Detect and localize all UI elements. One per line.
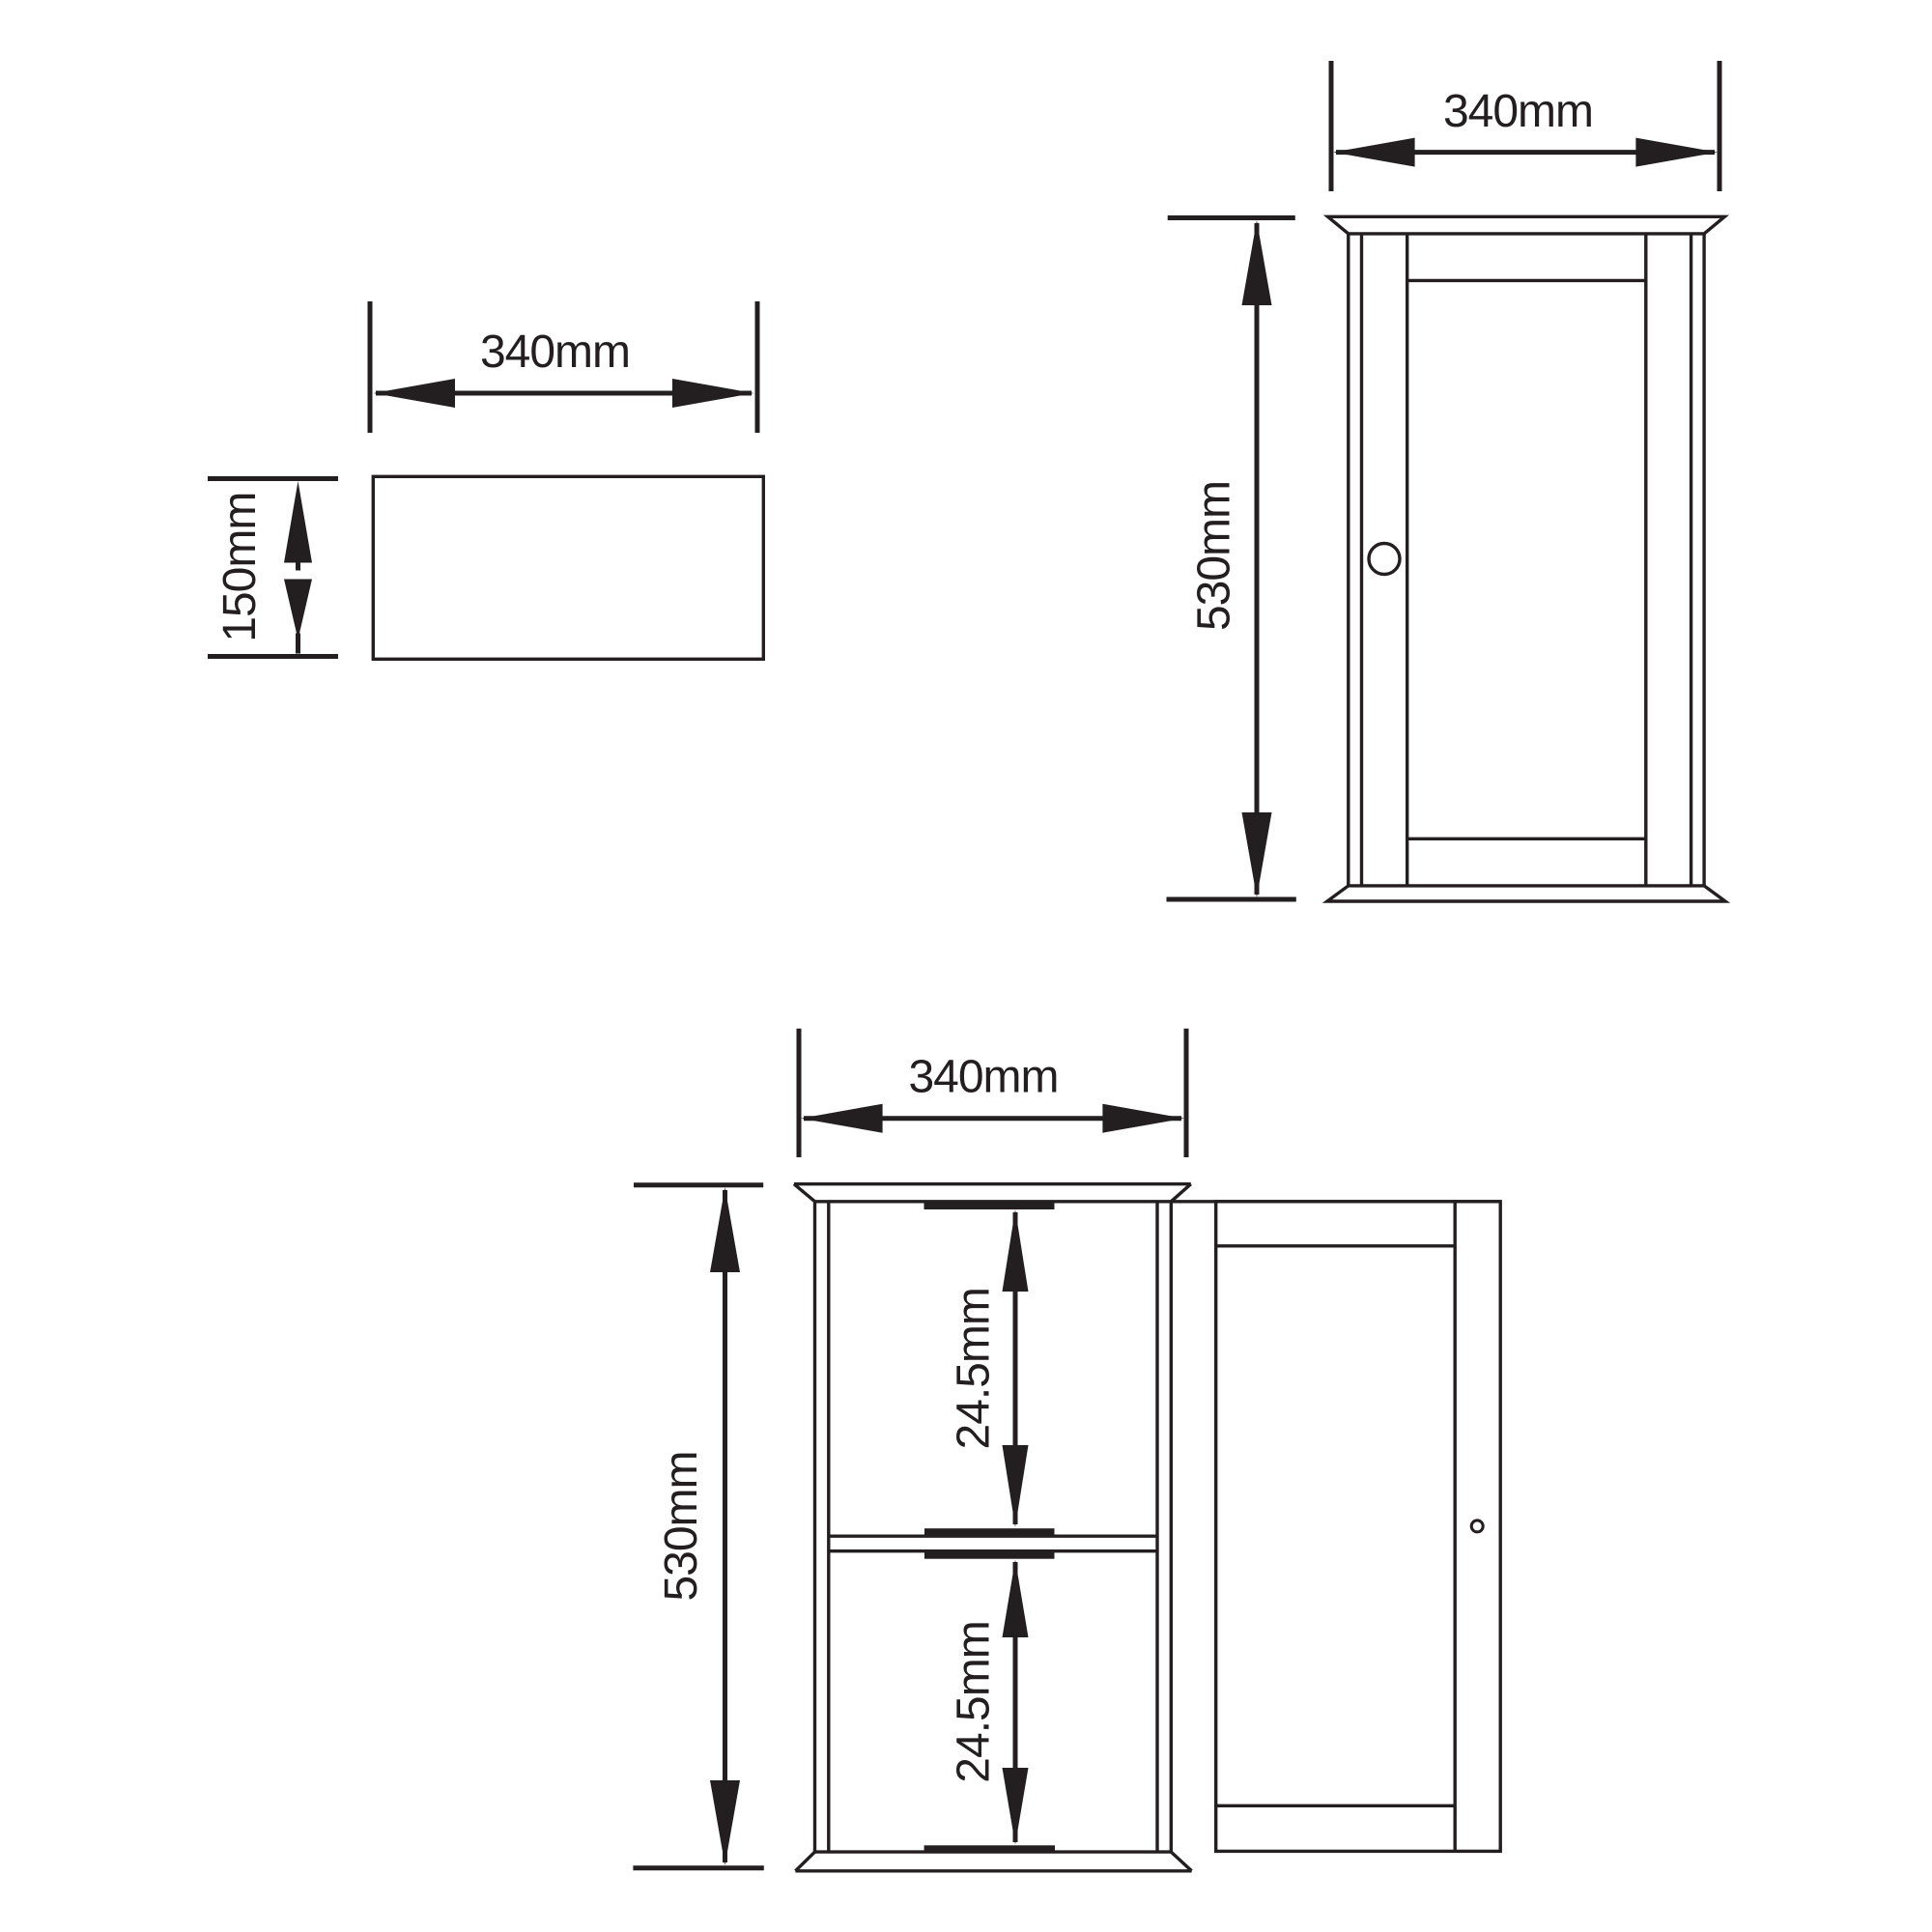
svg-text:150mm: 150mm: [214, 493, 266, 642]
svg-text:24.5mm: 24.5mm: [949, 1621, 1000, 1782]
svg-text:340mm: 340mm: [480, 327, 630, 378]
svg-text:340mm: 340mm: [1443, 86, 1593, 137]
svg-text:24.5mm: 24.5mm: [949, 1288, 1000, 1449]
svg-text:340mm: 340mm: [908, 1052, 1058, 1103]
svg-text:530mm: 530mm: [1189, 481, 1240, 631]
svg-text:530mm: 530mm: [656, 1451, 707, 1601]
